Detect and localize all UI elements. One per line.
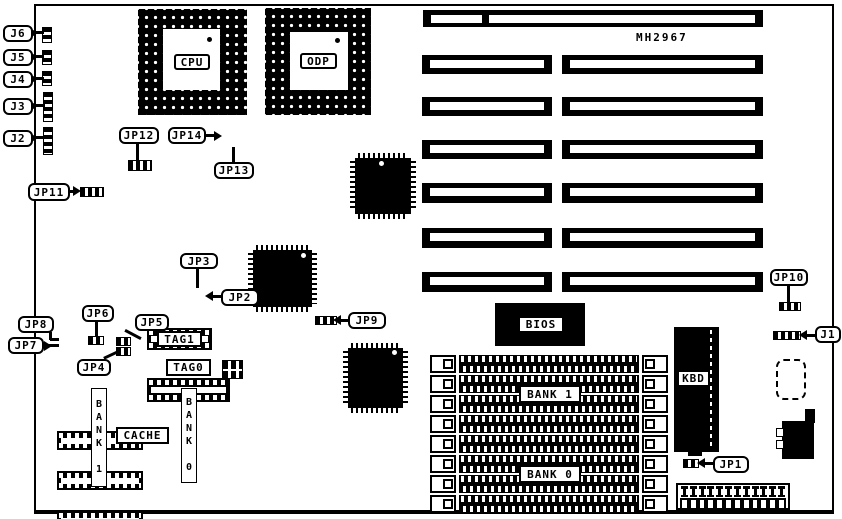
isa-slot-5-short bbox=[422, 183, 552, 203]
callout-jp13: JP13 bbox=[214, 162, 254, 179]
keyboard-connector-notch-1 bbox=[776, 428, 784, 437]
simm-socket-5 bbox=[430, 435, 668, 453]
isa-slot-3-short bbox=[422, 97, 552, 116]
power-connector-holes bbox=[678, 498, 788, 510]
keyboard-connector bbox=[782, 421, 814, 459]
simm-socket-8 bbox=[430, 495, 668, 513]
callout-jp5: JP5 bbox=[135, 314, 169, 331]
isa-slot-6-long bbox=[562, 228, 763, 248]
callout-jp2: JP2 bbox=[221, 289, 259, 306]
callout-arrow-jp14 bbox=[214, 131, 222, 141]
callout-jp8: JP8 bbox=[18, 316, 54, 333]
simm-bank1-label: BANK 1 bbox=[519, 385, 581, 403]
callout-j6: J6 bbox=[3, 25, 33, 42]
jumper-jp13-jp14 bbox=[222, 360, 243, 379]
cpu-pin1-dot bbox=[207, 37, 212, 42]
jumper-jp10 bbox=[779, 302, 801, 311]
odp-label: ODP bbox=[300, 53, 337, 69]
callout-arrow-jp1 bbox=[697, 458, 705, 468]
jumper-j1 bbox=[773, 331, 801, 340]
callout-j2: J2 bbox=[3, 130, 33, 147]
jumper-j3 bbox=[43, 92, 53, 122]
callout-j3: J3 bbox=[3, 98, 33, 115]
keyboard-connector-notch-2 bbox=[776, 440, 784, 449]
callout-tail-jp12 bbox=[136, 142, 139, 161]
jumper-j2 bbox=[43, 127, 53, 155]
isa-slot-2-short bbox=[422, 55, 552, 74]
kbd-label: KBD bbox=[677, 370, 710, 387]
isa-slot-2-long bbox=[562, 55, 763, 74]
callout-arrow-jp7 bbox=[44, 341, 52, 351]
isa-slot-7-long bbox=[562, 272, 763, 292]
power-connector-pins bbox=[678, 485, 788, 498]
callout-tail-jp10 bbox=[787, 285, 790, 303]
jumper-jp5 bbox=[116, 337, 131, 346]
callout-arrow-jp11 bbox=[73, 186, 81, 196]
simm-bank0-label: BANK 0 bbox=[519, 465, 581, 483]
jumper-jp11 bbox=[80, 187, 104, 197]
chipset-qfp-1 bbox=[355, 158, 411, 214]
chipset-qfp-2 bbox=[253, 250, 312, 307]
callout-jp14: JP14 bbox=[168, 127, 206, 144]
callout-j5: J5 bbox=[3, 49, 33, 66]
kbd-chip-dashline bbox=[710, 330, 712, 449]
isa-slot-3-long bbox=[562, 97, 763, 116]
kbd-chip-notch bbox=[688, 450, 702, 456]
isa-slot-1 bbox=[423, 10, 763, 27]
bios-chip: BIOS bbox=[495, 303, 585, 346]
isa-slot-4-short bbox=[422, 140, 552, 159]
battery-outline bbox=[776, 359, 806, 400]
callout-tail-jp3 bbox=[196, 268, 199, 288]
callout-tail-jp13 bbox=[232, 147, 235, 163]
cache-label: CACHE bbox=[116, 427, 169, 444]
jumper-jp12 bbox=[128, 160, 152, 171]
isa-slot-6-short bbox=[422, 228, 552, 248]
bios-label: BIOS bbox=[518, 316, 564, 333]
odp-socket-center: ODP bbox=[290, 32, 348, 90]
callout-jp4: JP4 bbox=[77, 359, 111, 376]
jumper-jp6 bbox=[88, 336, 104, 345]
callout-j4: J4 bbox=[3, 71, 33, 88]
callout-jp12: JP12 bbox=[119, 127, 159, 144]
callout-jp9: JP9 bbox=[348, 312, 386, 329]
tag0-label: TAG0 bbox=[166, 359, 211, 376]
jumper-j6 bbox=[42, 27, 52, 43]
callout-j1: J1 bbox=[815, 326, 841, 343]
callout-tail-jp6 bbox=[95, 321, 98, 337]
chipset-qfp-3 bbox=[348, 348, 403, 408]
callout-jp7: JP7 bbox=[8, 337, 44, 354]
isa-slot-5-long bbox=[562, 183, 763, 203]
power-connector bbox=[676, 483, 790, 510]
cache-bank0-label: BANK 0 bbox=[181, 388, 197, 483]
callout-arrow-j1 bbox=[799, 330, 807, 340]
kbd-chip: KBD bbox=[674, 327, 719, 452]
odp-pin1-dot bbox=[335, 38, 340, 43]
cache-bank1-label: BANK 1 bbox=[91, 388, 107, 487]
keyboard-connector-tab bbox=[805, 409, 815, 423]
isa-slot-7-short bbox=[422, 272, 552, 292]
callout-jp11: JP11 bbox=[28, 183, 70, 201]
callout-arrow-jp2 bbox=[205, 291, 213, 301]
simm-socket-1 bbox=[430, 355, 668, 373]
callout-jp3: JP3 bbox=[180, 253, 218, 269]
isa-slot-4-long bbox=[562, 140, 763, 159]
tag1-label: TAG1 bbox=[157, 331, 202, 347]
simm-socket-4 bbox=[430, 415, 668, 433]
motherboard-diagram: MH2967 CPU ODP bbox=[0, 0, 842, 519]
callout-jp10: JP10 bbox=[770, 269, 808, 286]
callout-jp6: JP6 bbox=[82, 305, 114, 322]
callout-arrow-jp9 bbox=[333, 315, 341, 325]
cpu-label: CPU bbox=[174, 54, 210, 70]
cpu-socket-center: CPU bbox=[163, 29, 220, 90]
odp-socket: ODP bbox=[265, 8, 371, 115]
callout-jp1: JP1 bbox=[713, 456, 749, 473]
part-number: MH2967 bbox=[636, 31, 688, 44]
cache-chip bbox=[57, 511, 143, 519]
cpu-socket: CPU bbox=[138, 9, 247, 115]
